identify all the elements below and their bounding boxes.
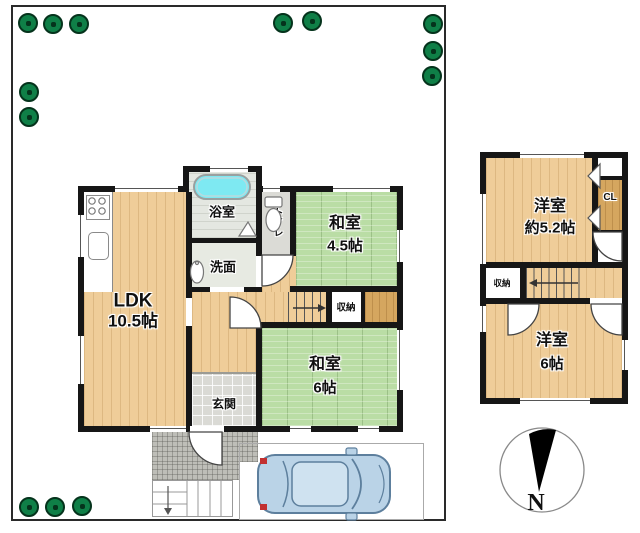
wall bbox=[598, 230, 622, 234]
window bbox=[263, 186, 280, 192]
wall bbox=[183, 166, 189, 192]
tree-icon bbox=[45, 497, 65, 517]
closet-1f bbox=[365, 292, 397, 322]
wall bbox=[256, 322, 403, 328]
hall-1f bbox=[192, 292, 256, 374]
window bbox=[520, 398, 590, 404]
window bbox=[520, 152, 584, 158]
label-washitsu45: 和室 bbox=[329, 216, 361, 232]
tree-icon bbox=[18, 13, 38, 33]
window bbox=[397, 330, 403, 390]
door-opening bbox=[210, 287, 244, 292]
label-washitsu6: 和室 bbox=[309, 357, 341, 373]
wall bbox=[189, 238, 256, 243]
label-ldk: LDK bbox=[113, 292, 152, 311]
window bbox=[78, 336, 84, 384]
wall bbox=[397, 186, 403, 432]
entrance-step-edge bbox=[192, 372, 256, 374]
wall bbox=[290, 192, 296, 256]
label-yoshitsu52: 洋室 bbox=[534, 199, 566, 215]
porch bbox=[152, 462, 240, 480]
label-toilet: トイレ bbox=[271, 207, 281, 237]
room-washitsu-6 bbox=[262, 328, 397, 426]
label-storage-1f: 収納 bbox=[336, 303, 355, 313]
label-storage-2f: 収納 bbox=[493, 279, 510, 288]
window bbox=[115, 186, 178, 192]
compass-icon: N bbox=[500, 428, 584, 516]
tree-icon bbox=[302, 11, 322, 31]
tree-icon bbox=[19, 107, 39, 127]
tree-icon bbox=[423, 41, 443, 61]
stairs-1f bbox=[288, 292, 326, 322]
tree-icon bbox=[19, 497, 39, 517]
window bbox=[480, 194, 486, 264]
label-entrance: 玄関 bbox=[212, 398, 236, 410]
window bbox=[397, 230, 403, 262]
hall-1f-stair-landing bbox=[256, 292, 288, 322]
bathtub-icon bbox=[193, 174, 251, 200]
label-ldk-size: 10.5帖 bbox=[108, 313, 158, 330]
label-closet-2f: CL bbox=[603, 193, 616, 203]
wall bbox=[592, 158, 598, 265]
tree-icon bbox=[43, 14, 63, 34]
label-yoshitsu52-size: 約5.2帖 bbox=[525, 221, 576, 236]
window bbox=[622, 340, 628, 370]
tree-icon bbox=[423, 14, 443, 34]
window bbox=[480, 306, 486, 332]
door-opening bbox=[186, 298, 192, 326]
wall bbox=[361, 292, 365, 322]
wall bbox=[256, 322, 262, 432]
label-washitsu6-size: 6帖 bbox=[313, 381, 336, 396]
wall bbox=[256, 172, 262, 256]
label-washroom: 洗面 bbox=[210, 261, 236, 274]
wall bbox=[480, 298, 590, 304]
closet-2f bbox=[598, 180, 622, 230]
compass-north-label: N bbox=[527, 490, 545, 516]
parking-space bbox=[239, 443, 424, 520]
label-yoshitsu6-size: 6帖 bbox=[540, 357, 563, 372]
window bbox=[210, 166, 248, 172]
wall bbox=[598, 176, 622, 180]
wall bbox=[480, 152, 486, 404]
label-yoshitsu6: 洋室 bbox=[536, 333, 568, 349]
window bbox=[333, 186, 390, 192]
window bbox=[290, 426, 311, 432]
stove-icon bbox=[86, 195, 110, 220]
kitchen-sink-icon bbox=[88, 232, 109, 260]
tree-icon bbox=[273, 13, 293, 33]
tree-icon bbox=[422, 66, 442, 86]
tree-icon bbox=[19, 82, 39, 102]
approach-steps bbox=[152, 480, 233, 517]
floor-plan-canvas: LDK 10.5帖 浴室 洗面 トイレ 和室 4.5帖 収納 和室 6帖 玄関 … bbox=[0, 0, 640, 533]
wall bbox=[480, 262, 622, 268]
room-yoshitsu-6 bbox=[486, 304, 622, 398]
label-washitsu45-size: 4.5帖 bbox=[327, 239, 363, 254]
tree-icon bbox=[69, 14, 89, 34]
tree-icon bbox=[72, 496, 92, 516]
window bbox=[358, 426, 379, 432]
wall bbox=[520, 268, 526, 298]
wall bbox=[290, 286, 403, 292]
stairs-2f bbox=[526, 268, 586, 298]
label-bath: 浴室 bbox=[209, 206, 235, 219]
hall-2f bbox=[586, 268, 622, 298]
wall bbox=[326, 292, 332, 322]
